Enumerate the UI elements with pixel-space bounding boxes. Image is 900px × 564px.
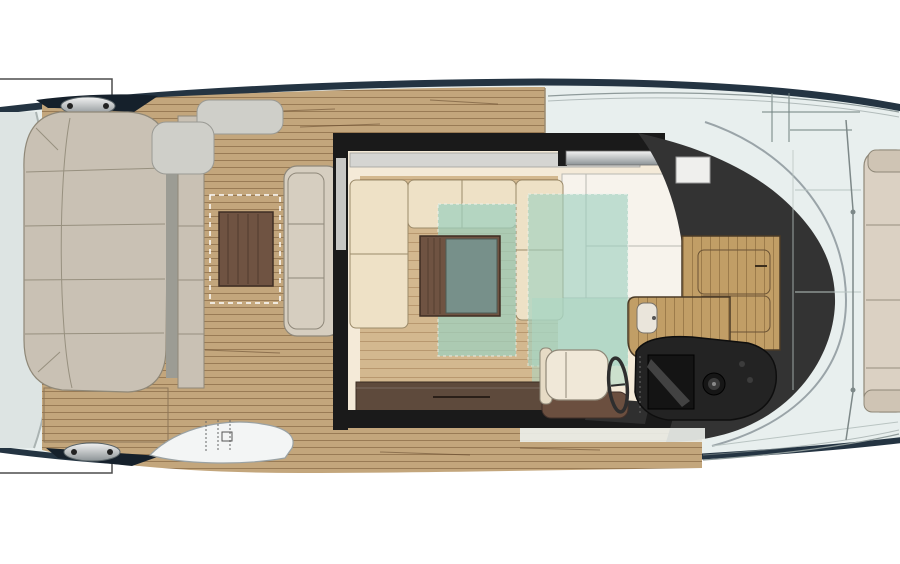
rail-post-2 (851, 388, 856, 393)
cockpit-bench (284, 166, 340, 336)
cockpit-table (219, 212, 273, 286)
console-knob-2 (747, 377, 753, 383)
coffee-table-top (446, 239, 497, 313)
galley-faucet (652, 316, 656, 320)
sunroof-rail (566, 151, 666, 165)
floor-plan-page (0, 0, 900, 564)
seat-cushion (546, 350, 608, 400)
rail-post-1 (851, 210, 856, 215)
bow-sunpad-cushion (864, 150, 900, 412)
stern-teak-step (44, 388, 168, 442)
salon-wall-top (333, 133, 665, 151)
sunpad-cushion (24, 112, 168, 392)
console-knob-1 (739, 361, 745, 367)
bow-pad-bolster-top (868, 150, 900, 172)
coffee-table (420, 236, 500, 316)
tv-sideboard (356, 382, 544, 412)
bow-pad-bolster-bottom (864, 390, 900, 412)
mooring-cleat-bottom (64, 443, 120, 461)
dash-hatch (676, 157, 710, 183)
gauge-needle-hub (712, 382, 716, 386)
helm-station (540, 337, 776, 424)
deck-plan-drawing (0, 0, 900, 564)
sliding-door (336, 158, 346, 250)
gunwale-band (520, 428, 705, 442)
